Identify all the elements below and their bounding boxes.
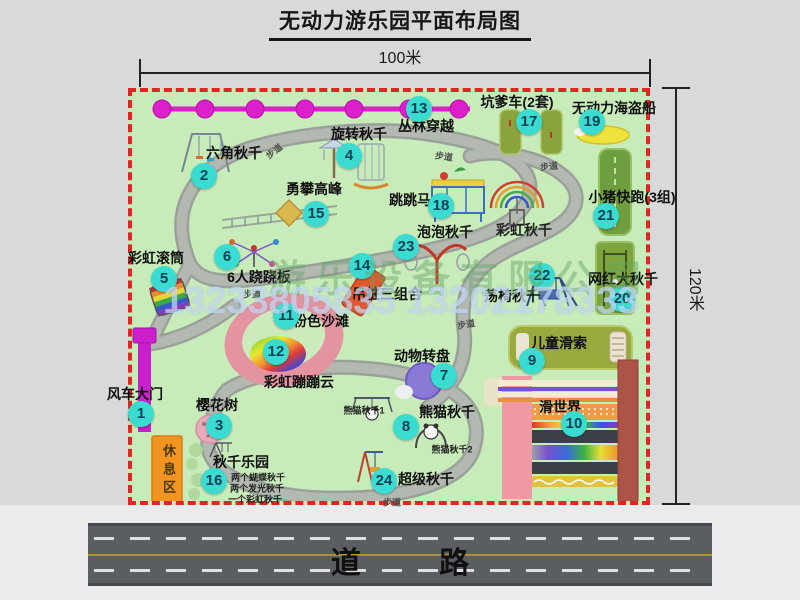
marker-14: 14	[349, 253, 375, 279]
attraction-label-14: 吊桩三组合	[352, 284, 422, 304]
road-label: 道 路	[88, 538, 712, 582]
marker-7: 7	[431, 363, 457, 389]
marker-19: 19	[579, 109, 605, 135]
page-title: 无动力游乐园平面布局图	[269, 5, 531, 41]
marker-15: 15	[303, 201, 329, 227]
annotation-6: 一个彩虹秋千	[228, 493, 282, 506]
height-dimension-tick-top	[662, 87, 690, 89]
marker-6: 6	[214, 244, 240, 270]
annotation-2: 熊猫秋千1	[343, 404, 384, 417]
annotation-3: 熊猫秋千2	[431, 443, 472, 456]
marker-21: 21	[593, 203, 619, 229]
attraction-label-22: 荡椅秋千	[484, 286, 540, 306]
walkway-label-2: 步道	[434, 148, 454, 163]
width-dimension-line	[140, 72, 650, 74]
marker-22: 22	[529, 263, 555, 289]
annotation-1: 彩虹秋千	[496, 220, 552, 240]
marker-2: 2	[191, 163, 217, 189]
marker-18: 18	[428, 193, 454, 219]
attraction-label-4: 旋转秋千	[331, 124, 387, 144]
marker-1: 1	[128, 401, 154, 427]
slide-world-area	[484, 360, 638, 501]
height-dimension-label: 120米	[682, 268, 706, 311]
marker-11: 11	[273, 303, 299, 329]
attraction-label-12: 彩虹蹦蹦云	[264, 372, 334, 392]
marker-3: 3	[206, 413, 232, 439]
walkway-label-4: 步道	[243, 288, 261, 301]
attraction-label-5: 彩虹滚筒	[128, 248, 184, 268]
attraction-label-8: 熊猫秋千	[419, 402, 475, 422]
marker-17: 17	[516, 109, 542, 135]
marker-13: 13	[406, 96, 432, 122]
width-dimension-label: 100米	[340, 44, 460, 68]
marker-9: 9	[519, 348, 545, 374]
attraction-label-18: 跳跳马	[389, 190, 431, 210]
marker-24: 24	[371, 468, 397, 494]
marker-5: 5	[151, 266, 177, 292]
park-map: 休息区 1风车大门2六角秋千3樱花树4旋转秋千5彩虹滚筒66人跷跷板7动物转盘8…	[128, 88, 650, 505]
rest-area-label: 休息区	[159, 444, 178, 498]
width-dimension-tick-right	[649, 59, 651, 87]
marker-4: 4	[336, 143, 362, 169]
attraction-label-24: 超级秋千	[398, 469, 454, 489]
walkway-label-3: 步道	[539, 159, 558, 174]
marker-23: 23	[393, 234, 419, 260]
title-bar: 无动力游乐园平面布局图	[0, 5, 800, 41]
attraction-label-2: 六角秋千	[206, 143, 262, 163]
height-dimension-line	[675, 88, 677, 505]
attraction-label-3: 樱花树	[196, 395, 238, 415]
attraction-label-15: 勇攀高峰	[286, 179, 342, 199]
attraction-label-16: 秋千乐园	[213, 452, 269, 472]
marker-20: 20	[609, 286, 635, 312]
width-dimension-tick-left	[139, 59, 141, 87]
road: 道 路	[88, 523, 712, 586]
marker-10: 10	[561, 411, 587, 437]
marker-16: 16	[201, 468, 227, 494]
screenshot-canvas: { "title": "无动力游乐园平面布局图", "scale": { "wi…	[0, 0, 800, 600]
marker-12: 12	[263, 339, 289, 365]
walkway-label-6: 步道	[383, 496, 401, 509]
attraction-label-11: 粉色沙滩	[293, 311, 349, 331]
height-dimension-tick-bottom	[662, 503, 690, 505]
attraction-label-6: 6人跷跷板	[227, 267, 291, 287]
attraction-label-17: 坑爹车(2套)	[480, 92, 553, 112]
marker-8: 8	[393, 414, 419, 440]
attraction-label-23: 泡泡秋千	[417, 222, 473, 242]
